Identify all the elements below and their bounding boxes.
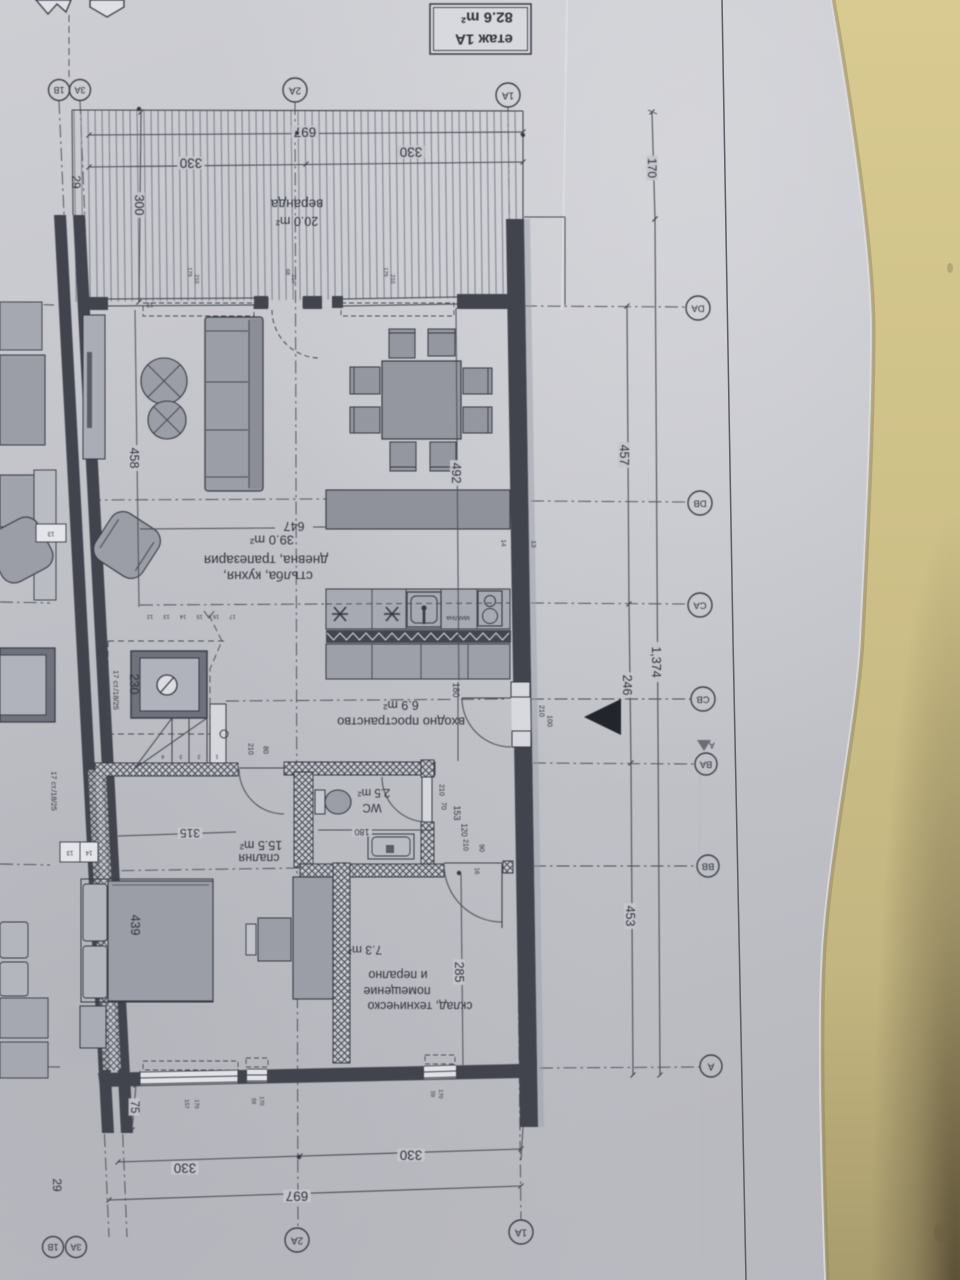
svg-text:13: 13 <box>163 613 169 619</box>
svg-text:647: 647 <box>284 519 305 533</box>
svg-text:3: 3 <box>179 753 182 759</box>
svg-text:210: 210 <box>538 705 545 717</box>
svg-text:82.6 m²: 82.6 m² <box>461 9 513 26</box>
svg-text:179: 179 <box>186 267 192 276</box>
svg-text:2А: 2А <box>289 85 302 96</box>
svg-text:3А: 3А <box>74 85 85 95</box>
svg-text:59: 59 <box>429 1091 435 1097</box>
svg-text:300: 300 <box>132 195 146 216</box>
svg-text:DА: DА <box>691 303 705 314</box>
svg-text:14: 14 <box>180 613 186 619</box>
svg-text:697: 697 <box>286 1189 309 1204</box>
svg-text:29: 29 <box>69 175 83 189</box>
svg-text:70: 70 <box>440 802 447 810</box>
svg-text:458: 458 <box>127 448 141 469</box>
svg-text:ВВ: ВВ <box>702 861 715 872</box>
svg-text:13: 13 <box>66 849 73 855</box>
svg-text:100: 100 <box>546 715 553 727</box>
svg-text:МИАЛНА: МИАЛНА <box>446 614 470 620</box>
svg-text:CВ: CВ <box>696 694 709 705</box>
svg-text:А: А <box>707 1061 714 1072</box>
svg-text:120: 120 <box>460 823 469 837</box>
svg-text:CА: CА <box>693 600 707 611</box>
svg-text:39.0 m²: 39.0 m² <box>249 533 294 548</box>
svg-text:3А: 3А <box>70 1242 81 1252</box>
svg-text:330: 330 <box>180 156 203 171</box>
svg-text:210: 210 <box>389 274 395 283</box>
svg-text:90: 90 <box>478 844 485 852</box>
svg-text:ВА: ВА <box>699 759 712 770</box>
svg-text:80: 80 <box>262 746 269 754</box>
svg-text:1А: 1А <box>502 90 515 101</box>
svg-text:453: 453 <box>623 906 637 927</box>
svg-text:330: 330 <box>400 1148 423 1163</box>
svg-text:DВ: DВ <box>693 498 706 509</box>
svg-text:2.5 m²: 2.5 m² <box>358 786 391 798</box>
svg-text:17 ст./18/25: 17 ст./18/25 <box>50 771 59 811</box>
svg-text:14: 14 <box>500 539 507 547</box>
svg-text:дневна, трапезария: дневна, трапезария <box>204 553 328 568</box>
svg-text:457: 457 <box>617 445 631 466</box>
svg-text:14: 14 <box>85 849 92 855</box>
svg-text:спалня: спалня <box>239 851 280 865</box>
svg-text:етаж 1А: етаж 1А <box>455 31 513 48</box>
svg-text:1В: 1В <box>47 1242 58 1252</box>
svg-text:1: 1 <box>215 753 218 759</box>
svg-text:2А: 2А <box>291 1235 304 1246</box>
svg-text:1В: 1В <box>53 85 64 95</box>
svg-text:13: 13 <box>530 540 537 548</box>
svg-text:WC: WC <box>362 801 381 813</box>
svg-text:179: 179 <box>382 267 388 276</box>
svg-text:стълба, кухня,: стълба, кухня, <box>223 569 313 584</box>
svg-text:170: 170 <box>645 158 659 178</box>
svg-text:180: 180 <box>354 827 369 837</box>
svg-text:1А: 1А <box>515 1227 528 1238</box>
svg-text:15.5 m²: 15.5 m² <box>240 838 282 852</box>
svg-text:285: 285 <box>452 962 466 983</box>
svg-text:6.9 m²: 6.9 m² <box>383 698 418 712</box>
svg-text:330: 330 <box>400 145 423 160</box>
svg-text:210: 210 <box>438 784 445 796</box>
svg-text:170: 170 <box>193 1099 199 1108</box>
svg-text:20.0 m²: 20.0 m² <box>276 214 318 228</box>
svg-text:246: 246 <box>620 675 634 696</box>
svg-text:склад, техническо: склад, техническо <box>367 999 472 1013</box>
svg-text:17 ст./18/25: 17 ст./18/25 <box>112 670 121 710</box>
svg-text:315: 315 <box>180 826 200 840</box>
svg-text:29: 29 <box>50 1178 64 1192</box>
svg-text:4: 4 <box>161 753 164 759</box>
svg-text:230: 230 <box>127 674 141 695</box>
svg-text:330: 330 <box>174 1161 197 1176</box>
svg-text:12: 12 <box>147 613 153 619</box>
svg-text:170: 170 <box>258 1096 264 1105</box>
svg-text:210: 210 <box>462 839 469 851</box>
svg-text:59: 59 <box>250 1098 256 1104</box>
svg-text:180: 180 <box>451 682 461 697</box>
svg-text:и перално: и перално <box>368 968 427 982</box>
svg-text:13: 13 <box>146 301 153 307</box>
svg-text:210: 210 <box>247 743 254 755</box>
svg-text:15: 15 <box>196 613 202 619</box>
svg-text:439: 439 <box>128 915 142 936</box>
svg-text:А: А <box>709 741 715 750</box>
svg-text:16: 16 <box>473 868 479 875</box>
svg-text:492: 492 <box>449 463 463 484</box>
svg-text:68: 68 <box>284 269 290 275</box>
svg-text:210: 210 <box>193 274 199 283</box>
svg-text:210: 210 <box>290 274 296 283</box>
svg-text:157: 157 <box>183 1099 189 1108</box>
svg-text:7.3 m²: 7.3 m² <box>348 943 382 957</box>
svg-text:входно пространство: входно пространство <box>337 715 465 730</box>
svg-text:153: 153 <box>452 805 462 820</box>
svg-text:13: 13 <box>47 530 54 536</box>
svg-text:75: 75 <box>128 1101 140 1114</box>
svg-text:1,374: 1,374 <box>649 646 663 677</box>
svg-text:веранда: веранда <box>270 197 323 212</box>
svg-text:17: 17 <box>229 613 235 619</box>
svg-text:16: 16 <box>213 613 219 619</box>
svg-text:2: 2 <box>197 753 200 759</box>
svg-text:170: 170 <box>437 1089 443 1098</box>
svg-text:помещение: помещение <box>363 984 430 998</box>
